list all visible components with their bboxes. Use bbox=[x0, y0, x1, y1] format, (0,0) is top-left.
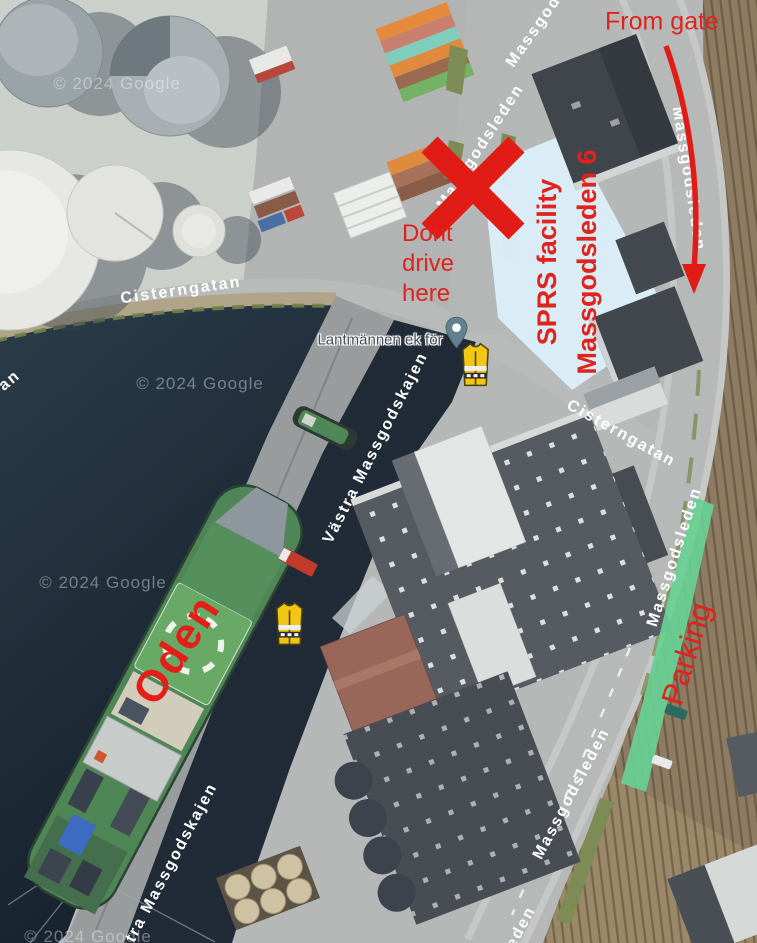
satellite-imagery bbox=[0, 0, 757, 943]
google-watermark: © 2024 Google bbox=[39, 573, 167, 593]
annotation-sprs-facility-line1: SPRS facility bbox=[527, 149, 567, 374]
google-watermark: © 2024 Google bbox=[53, 74, 181, 94]
annotation-sprs-facility-line2: Massgodsleden 6 bbox=[567, 149, 607, 374]
safety-vest-icon bbox=[459, 342, 492, 393]
annotation-sprs-facility: SPRS facility Massgodsleden 6 bbox=[527, 149, 607, 374]
route-arrow-icon bbox=[648, 38, 718, 303]
google-watermark: © 2024 Google bbox=[136, 374, 264, 394]
safety-vest-icon bbox=[273, 599, 306, 654]
annotated-satellite-map: © 2024 Google © 2024 Google © 2024 Googl… bbox=[0, 0, 757, 943]
poi-label-lantmannen: Lantmännen ek för bbox=[317, 332, 442, 349]
annotation-dont-drive-here: Dont drive here bbox=[402, 219, 454, 309]
annotation-from-gate: From gate bbox=[605, 8, 719, 37]
